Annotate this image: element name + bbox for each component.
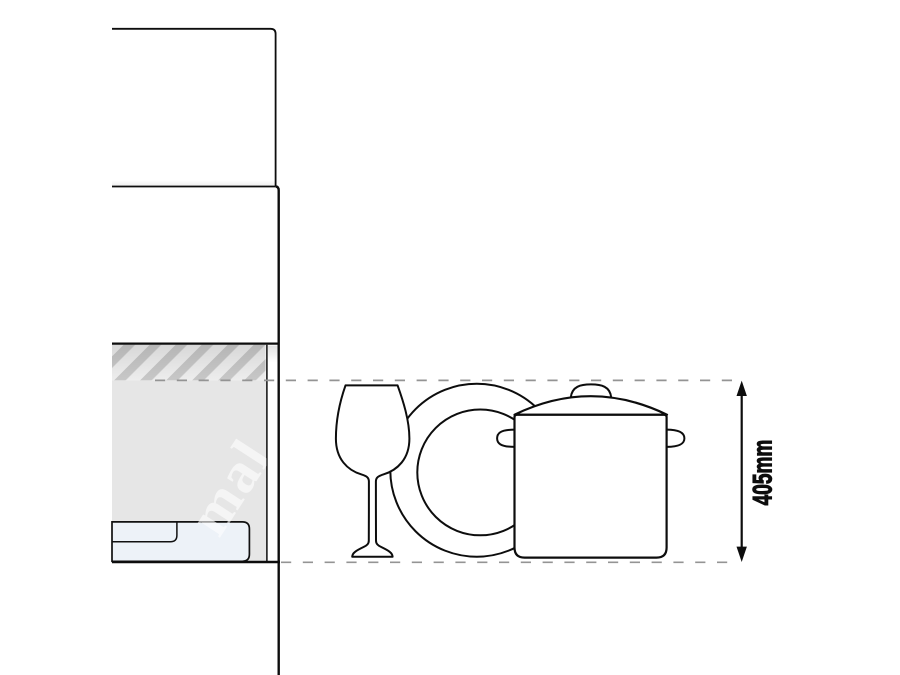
svg-text:405mm: 405mm <box>747 440 777 506</box>
